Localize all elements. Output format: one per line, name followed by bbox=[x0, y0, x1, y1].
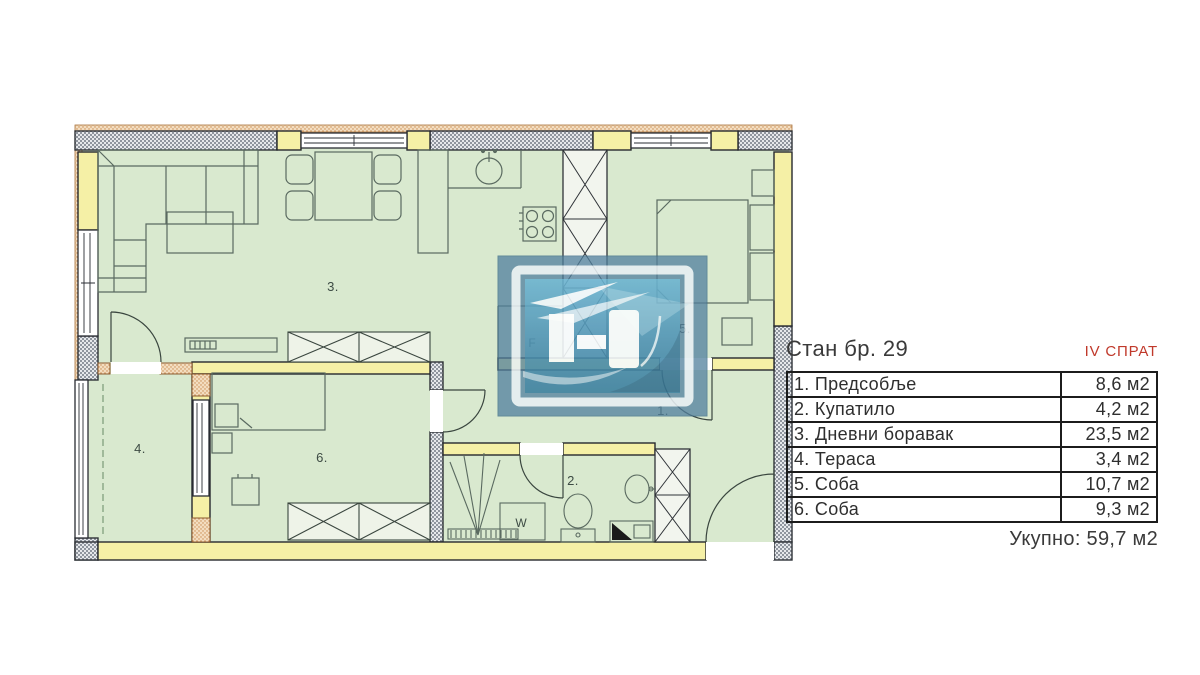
room-name-cell: 4. Тераса bbox=[787, 447, 1061, 472]
room-area-cell: 8,6 м2 bbox=[1061, 372, 1157, 397]
shaft-bathroom bbox=[655, 449, 690, 542]
room-area-cell: 3,4 м2 bbox=[1061, 447, 1157, 472]
table-row: 5. Соба 10,7 м2 bbox=[787, 472, 1157, 497]
room-area-cell: 4,2 м2 bbox=[1061, 397, 1157, 422]
page: 3. 4. 5. 6. 1. 2. F W bbox=[0, 0, 1200, 675]
window-left bbox=[78, 230, 98, 336]
wardrobe-hall bbox=[288, 332, 430, 362]
table-row: 3. Дневни боравак 23,5 м2 bbox=[787, 422, 1157, 447]
panel-header: Стан бр. 29 IV СПРАТ bbox=[786, 336, 1158, 362]
room-name-cell: 3. Дневни боравак bbox=[787, 422, 1061, 447]
floor-badge: IV СПРАТ bbox=[1085, 343, 1158, 360]
room-name-cell: 5. Соба bbox=[787, 472, 1061, 497]
washer-label: W bbox=[515, 516, 527, 530]
table-row: 2. Купатило 4,2 м2 bbox=[787, 397, 1157, 422]
room-area-cell: 10,7 м2 bbox=[1061, 472, 1157, 497]
watermark-logo bbox=[498, 256, 707, 416]
room-label-terrace: 4. bbox=[134, 441, 146, 456]
wardrobe-bedroom6 bbox=[288, 503, 430, 540]
total-area: Укупно: 59,7 м2 bbox=[786, 528, 1158, 551]
room-label-living: 3. bbox=[327, 279, 339, 294]
room-name-cell: 6. Соба bbox=[787, 497, 1061, 522]
room-area-cell: 23,5 м2 bbox=[1061, 422, 1157, 447]
window-top-right bbox=[631, 133, 711, 148]
room-area-cell: 9,3 м2 bbox=[1061, 497, 1157, 522]
apartment-title: Стан бр. 29 bbox=[786, 336, 908, 362]
info-panel: Стан бр. 29 IV СПРАТ 1. Предсобље 8,6 м2… bbox=[786, 336, 1158, 551]
room-areas-table: 1. Предсобље 8,6 м2 2. Купатило 4,2 м2 3… bbox=[786, 371, 1158, 523]
window-top-left bbox=[301, 133, 407, 148]
room-name-cell: 1. Предсобље bbox=[787, 372, 1061, 397]
terrace-railing bbox=[75, 380, 88, 538]
table-row: 6. Соба 9,3 м2 bbox=[787, 497, 1157, 522]
room-label-bathroom: 2. bbox=[567, 473, 579, 488]
room-label-bedroom6: 6. bbox=[316, 450, 328, 465]
table-row: 4. Тераса 3,4 м2 bbox=[787, 447, 1157, 472]
window-terrace-bedroom bbox=[193, 400, 209, 496]
table-row: 1. Предсобље 8,6 м2 bbox=[787, 372, 1157, 397]
room-name-cell: 2. Купатило bbox=[787, 397, 1061, 422]
